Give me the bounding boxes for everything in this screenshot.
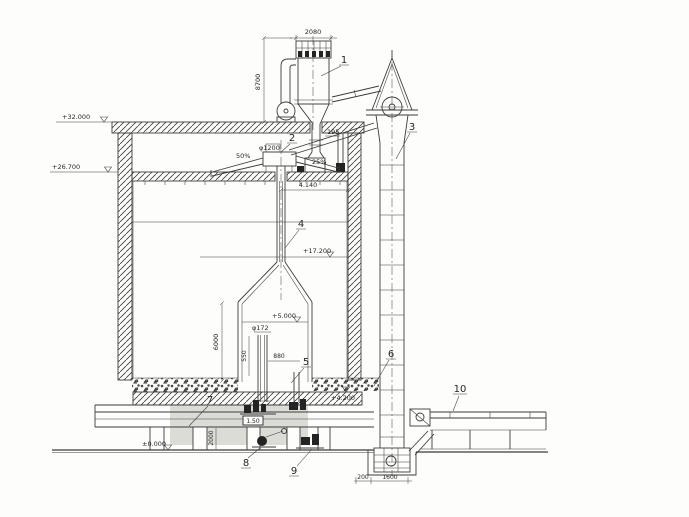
part-label-6: 6 [388,349,394,360]
dim-slope-right: 25% [312,158,326,166]
part-label-5: 5 [303,357,309,368]
dim-tunnel-height: 2000 [208,430,215,445]
elevation-distributor-floor: +26.700 [52,163,80,171]
part-label-4: 4 [298,219,304,230]
part-label-8: 8 [243,458,249,469]
dim-pipe-offset: 4.140 [299,181,318,189]
dim-inner-pipe-dia: φ172 [252,324,269,332]
discharge-conveyor [410,409,546,449]
bucket-elevator [366,50,434,476]
dim-distributor-dia: φ1200 [259,144,280,152]
bottom-structure [52,392,548,453]
blueprint-canvas: +32.000 +26.700 +17.200 +5.000 +4.200 ±0… [0,0,689,517]
part-label-2: 2 [289,133,295,144]
dim-slope-left: 50% [236,152,250,160]
elevation-ground: ±0.000 [142,440,166,448]
material-bands [132,378,379,392]
dim-outlet: 880 [273,353,285,360]
part-label-3: 3 [409,122,415,133]
technical-drawing: +32.000 +26.700 +17.200 +5.000 +4.200 ±0… [0,0,689,517]
part-label-7: 7 [207,395,213,406]
dim-cone-height: 6000 [212,334,220,351]
elevation-mid-level: +17.200 [303,247,331,255]
dim-boot-a: 200 [357,474,369,481]
dim-top-width: 2080 [305,28,322,36]
elevation-roof: +32.000 [62,113,90,121]
dim-boot-b: 1600 [382,474,397,481]
dim-belt: 1.50 [246,418,260,425]
dim-pipe-gap: 550 [241,350,248,362]
part-label-9: 9 [291,466,297,477]
elevation-cone-level: +5.000 [272,312,296,320]
part-label-10: 10 [454,384,467,395]
dim-chute: 195 [327,128,339,136]
part-label-1: 1 [341,55,347,66]
elevation-material-level: +4.200 [331,394,355,402]
dim-stack-height: 8700 [254,74,262,91]
